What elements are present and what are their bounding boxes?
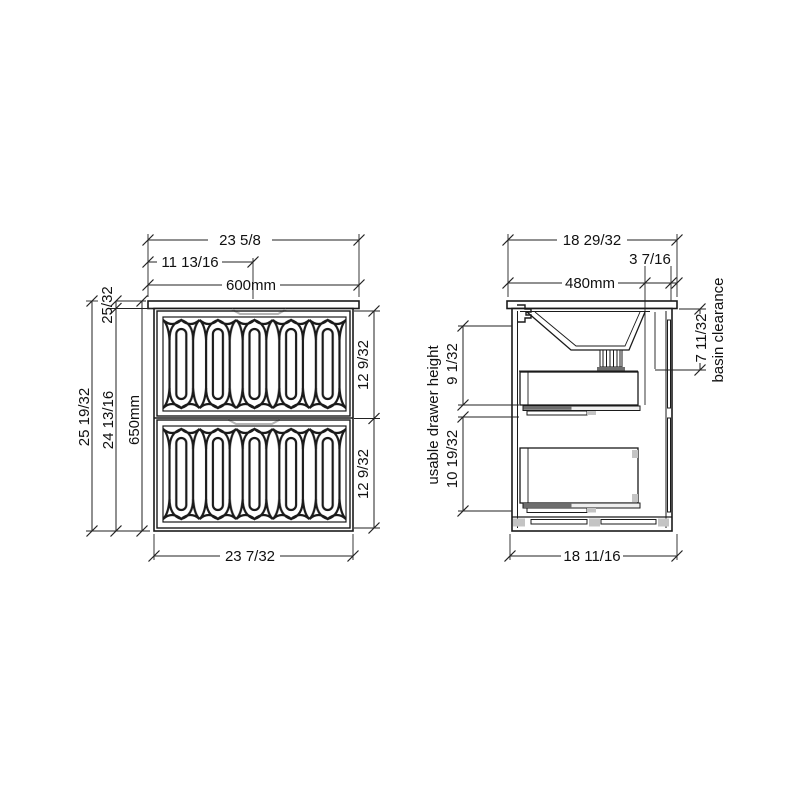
dim-side-depth-total: 18 29/32 [563, 232, 621, 249]
dim-front-width-cabinet: 23 7/32 [225, 548, 275, 565]
front-view [148, 301, 359, 531]
dim-front-height-mm: 650mm [126, 395, 143, 445]
dim-front-bottom-drawer: 12 9/32 [355, 449, 372, 499]
vanity-dimension-drawing: 23 5/8 11 13/16 600mm 25/32 25 19/32 24 … [0, 0, 800, 800]
dim-front-top-drawer: 12 9/32 [355, 340, 372, 390]
side-view [507, 301, 677, 531]
dim-side-tap-ledge: 3 7/16 [629, 251, 671, 268]
dim-front-width-mm: 600mm [226, 277, 276, 294]
front-countertop [148, 301, 359, 309]
dim-side-bottom-drawer-usable: 10 19/32 [444, 430, 461, 488]
dim-front-countertop-thickness: 25/32 [99, 286, 116, 324]
front-bottom-drawer-pattern [163, 426, 346, 522]
dim-front-width-total: 23 5/8 [219, 232, 261, 249]
dim-front-height-total: 25 19/32 [76, 388, 93, 446]
dim-side-basin-clearance-value: 7 11/32 [693, 314, 710, 363]
side-basin-drain [597, 350, 625, 372]
dim-side-depth-mm: 480mm [565, 275, 615, 292]
dim-side-usable-drawer-label: usable drawer height [425, 345, 442, 485]
front-top-drawer-pattern [163, 317, 346, 411]
dim-side-depth-cabinet: 18 11/16 [563, 548, 620, 565]
technical-drawing-page: 23 5/8 11 13/16 600mm 25/32 25 19/32 24 … [0, 0, 800, 800]
dim-front-height-cabinet: 24 13/16 [100, 391, 117, 449]
side-cabinet-body [512, 309, 672, 532]
side-countertop [507, 301, 677, 309]
dim-side-basin-clearance-label: basin clearance [710, 277, 727, 382]
dim-front-width-center: 11 13/16 [161, 254, 218, 271]
dim-side-top-drawer-usable: 9 1/32 [444, 343, 461, 385]
